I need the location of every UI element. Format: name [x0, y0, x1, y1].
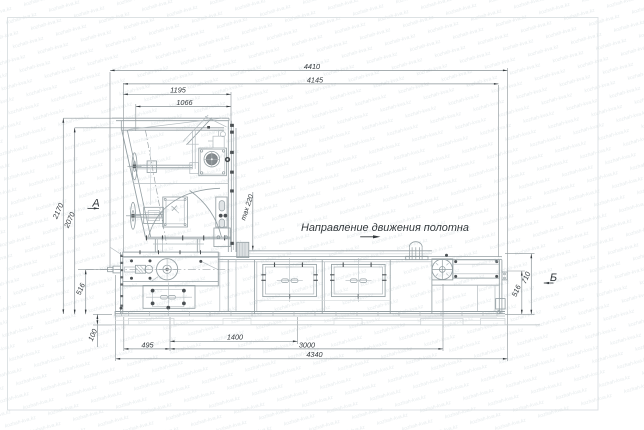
svg-text:4145: 4145 — [307, 75, 324, 84]
svg-text:495: 495 — [141, 340, 154, 349]
svg-text:4340: 4340 — [306, 350, 322, 359]
svg-text:4410: 4410 — [304, 62, 320, 71]
svg-text:1400: 1400 — [227, 333, 243, 342]
svg-text:1195: 1195 — [170, 86, 187, 95]
svg-text:Направление движения полотна: Направление движения полотна — [301, 222, 469, 234]
svg-text:3000: 3000 — [299, 340, 315, 349]
svg-text:Б: Б — [550, 272, 557, 284]
svg-text:1066: 1066 — [176, 98, 193, 107]
